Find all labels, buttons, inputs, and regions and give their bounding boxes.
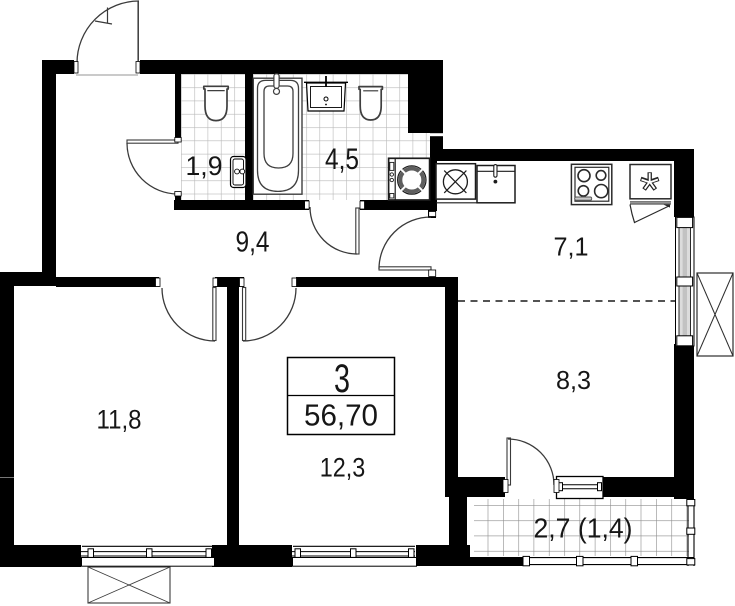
svg-text:12,3: 12,3 (320, 453, 366, 483)
svg-text:56,70: 56,70 (304, 398, 378, 433)
svg-text:9,4: 9,4 (236, 227, 270, 259)
svg-text:2,7 (1,4): 2,7 (1,4) (534, 513, 633, 544)
svg-text:8,3: 8,3 (556, 367, 591, 395)
svg-text:11,8: 11,8 (97, 405, 142, 435)
svg-text:3: 3 (334, 357, 350, 401)
svg-text:4,5: 4,5 (325, 143, 359, 176)
svg-text:7,1: 7,1 (554, 234, 589, 262)
svg-text:1,9: 1,9 (186, 151, 223, 181)
